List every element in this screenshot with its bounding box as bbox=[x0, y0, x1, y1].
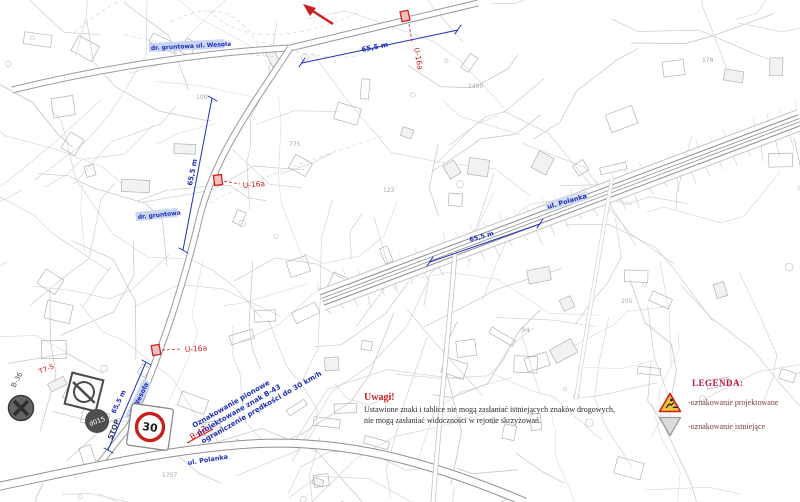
parcel-number: 94 bbox=[522, 327, 530, 334]
legend-item-projected: -oznakowanie projektowane bbox=[658, 392, 798, 413]
parcel-number: 1757 bbox=[162, 472, 177, 479]
dimension-label-left: 65,5 m bbox=[186, 158, 199, 186]
street-label-mid: dr. gruntowa bbox=[137, 210, 181, 221]
dimension-label-top: 65,5 m bbox=[361, 41, 389, 54]
parcel-number: 205 bbox=[621, 298, 633, 305]
notes-title: Uwagi! bbox=[364, 392, 664, 403]
notes-block: Uwagi! Ustawione znaki i tablice nie mog… bbox=[364, 392, 664, 427]
legend: LEGENDA: -oznakowanie projektowane -ozna… bbox=[658, 378, 798, 440]
parcel-number: 178 bbox=[702, 57, 714, 64]
legend-item-existing: -oznakowanie istniejące bbox=[658, 416, 798, 437]
sign-marker-top bbox=[400, 10, 410, 21]
existing-dark-circle-sign: d015 bbox=[85, 409, 109, 433]
notes-line-1: Ustawione znaki i tablice nie mogą zasła… bbox=[364, 405, 664, 416]
parcel-number: 2400 bbox=[468, 83, 483, 90]
sign-marker-mid-label: U-16a bbox=[242, 179, 265, 190]
b36-label: B-36 bbox=[10, 370, 25, 389]
red-arrow-head bbox=[303, 4, 316, 16]
roadworks-warning-triangle-icon bbox=[658, 392, 682, 413]
sign-marker-mid bbox=[213, 174, 222, 185]
b43-zone-30-sign: 30 bbox=[126, 403, 173, 450]
sign-marker-top-label: U-16a bbox=[412, 47, 425, 71]
existing-diamond-sign bbox=[65, 373, 104, 412]
road-wesola-west bbox=[12, 48, 290, 90]
parcel-number: 123 bbox=[383, 187, 395, 194]
b43-speed-value: 30 bbox=[141, 420, 158, 435]
existing-gray-triangle-icon bbox=[658, 416, 682, 437]
street-label-polanka-bottom: ul. Polanka bbox=[187, 453, 229, 467]
legend-label-projected: -oznakowanie projektowane bbox=[688, 398, 778, 407]
parcel-number: 775 bbox=[289, 141, 301, 148]
t75-label: T7-5 bbox=[37, 363, 55, 377]
sign-marker-bottom bbox=[151, 344, 161, 355]
signage-plan-map: 65,5 m 65,5 m 65,5 m ul. Wesoła 65,5 m d… bbox=[0, 0, 800, 502]
parcel-number: 100 bbox=[196, 94, 208, 101]
legend-label-existing: -oznakowanie istniejące bbox=[688, 422, 765, 431]
sign-marker-bottom-label: U-16a bbox=[185, 343, 208, 354]
existing-crossed-circle-sign bbox=[9, 396, 34, 421]
annotation-line-2: projektowane znak B-43 bbox=[196, 383, 283, 438]
notes-line-2: nie mogą zasłaniać widoczności w rejonie… bbox=[364, 416, 664, 427]
legend-title: LEGENDA: bbox=[692, 378, 798, 388]
